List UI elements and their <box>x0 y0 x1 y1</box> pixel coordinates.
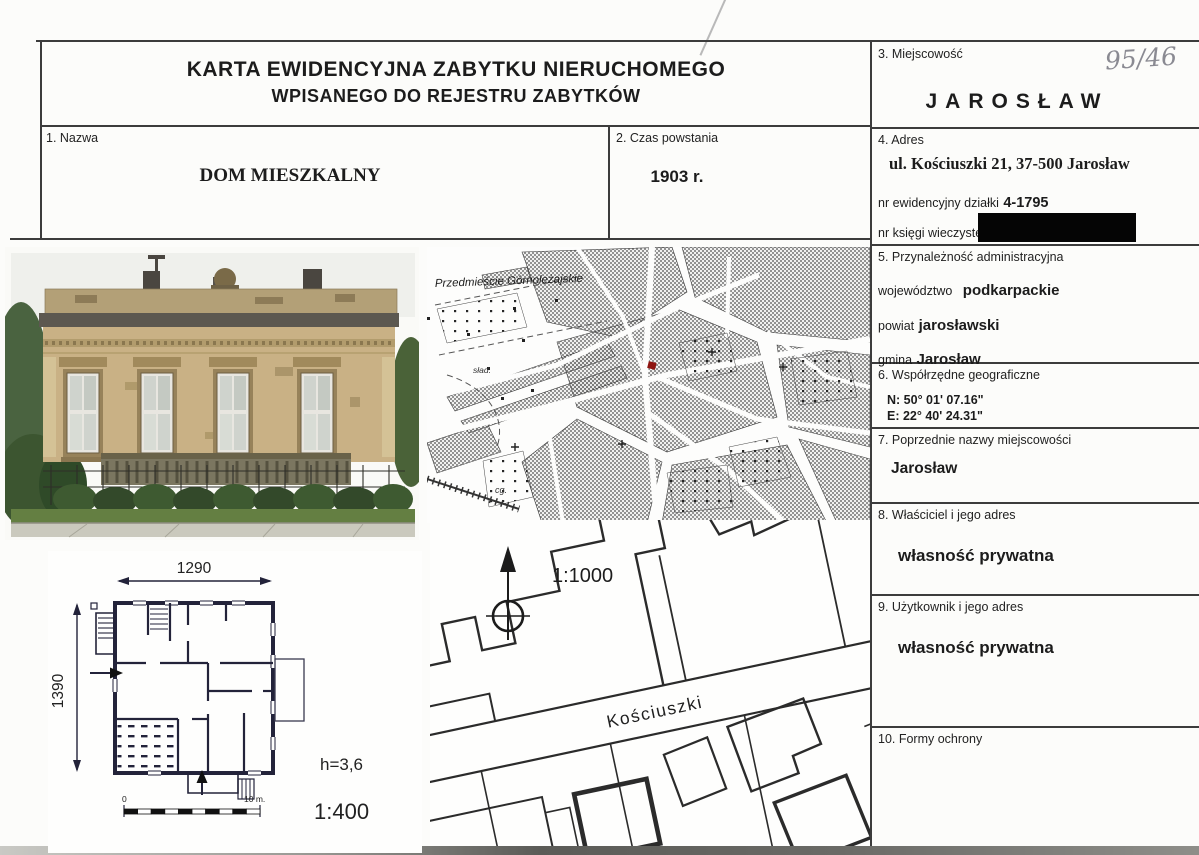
site-plan-drawing: Kościuszki 1:1000 <box>430 520 870 846</box>
handwritten-number: 95/46 <box>1104 42 1178 76</box>
rc-line-2 <box>872 244 1199 246</box>
field1-value: DOM MIESZKALNY <box>150 165 430 187</box>
rc-line-7 <box>872 726 1199 728</box>
county-row: powiat jarosławski <box>878 317 999 335</box>
floor-plan-drawing: 1290 1390 h=3,6 1:400 0 10 m. <box>48 551 422 853</box>
voivodeship-label: województwo <box>878 284 952 298</box>
field3-label: 3. Miejscowość <box>878 47 963 61</box>
field6-label: 6. Współrzędne geograficzne <box>878 368 1040 382</box>
field1-label: 1. Nazwa <box>46 131 98 145</box>
scan-scratch-line <box>699 0 726 56</box>
field4-parcel-row: nr ewidencyjny działki 4-1795 <box>878 194 1049 212</box>
floor-plan-scale-label: 1:400 <box>314 799 369 824</box>
field8-label: 8. Właściciel i jego adres <box>878 508 1016 522</box>
line-above-photo <box>10 238 872 240</box>
land-register-label: nr księgi wieczystej <box>878 226 985 240</box>
field2-value: 1903 r. <box>612 167 742 187</box>
historic-city-map: Przedmieście Górnoleżajskie sład. cg. <box>427 247 870 528</box>
rc-line-1 <box>872 127 1199 129</box>
heritage-record-card: 95/46 KARTA EWIDENCYJNA ZABYTKU NIERUCHO… <box>0 0 1199 855</box>
field3-value: JAROSŁAW <box>872 90 1162 114</box>
map-cg-label: cg. <box>495 485 507 495</box>
border-top <box>36 40 1199 42</box>
county-label: powiat <box>878 319 914 333</box>
coordinate-n: N: 50° 01' 07.16" <box>887 392 984 408</box>
field7-label: 7. Poprzednie nazwy miejscowości <box>878 433 1071 447</box>
building-photo <box>5 247 419 545</box>
floor-plan-height-note: h=3,6 <box>320 755 363 774</box>
county-value: jarosławski <box>919 317 1000 334</box>
commune-label: gmina <box>878 353 912 367</box>
rc-line-6 <box>872 594 1199 596</box>
line-under-title <box>40 125 872 127</box>
commune-row: gmina Jarosław <box>878 351 981 369</box>
floor-plan-width-dim: 1290 <box>177 560 212 577</box>
rc-line-4 <box>872 427 1199 429</box>
divider-field1-field2 <box>608 125 610 238</box>
field4-label: 4. Adres <box>878 133 924 147</box>
field9-label: 9. Użytkownik i jego adres <box>878 600 1023 614</box>
redaction-box <box>978 213 1136 242</box>
city-map-drawing: Przedmieście Górnoleżajskie sład. cg. <box>427 247 870 523</box>
rc-line-5 <box>872 502 1199 504</box>
floor-plan: 1290 1390 h=3,6 1:400 0 10 m. <box>48 551 422 855</box>
commune-value: Jarosław <box>917 351 981 368</box>
map-stad-label: sład. <box>473 365 491 375</box>
site-plan: Kościuszki 1:1000 <box>430 520 870 851</box>
field4-address: ul. Kościuszki 21, 37-500 Jarosław <box>889 154 1130 174</box>
field10-label: 10. Formy ochrony <box>878 732 982 746</box>
site-plan-scale-label: 1:1000 <box>552 565 613 587</box>
parcel-label: nr ewidencyjny działki <box>878 196 999 210</box>
building-photo-drawing <box>5 247 419 540</box>
photo-balustrade <box>101 453 351 485</box>
card-title-line1: KARTA EWIDENCYJNA ZABYTKU NIERUCHOMEGO <box>40 58 872 82</box>
floor-plan-dashed-room <box>118 722 176 771</box>
coordinate-e: E: 22° 40' 24.31" <box>887 408 983 424</box>
scalebar-start-label: 0 <box>122 794 127 804</box>
field8-value: własność prywatna <box>898 546 1054 566</box>
field2-label: 2. Czas powstania <box>616 131 718 145</box>
floor-plan-height-dim: 1390 <box>50 673 67 708</box>
parcel-value: 4-1795 <box>1003 195 1048 211</box>
voivodeship-value: podkarpackie <box>963 282 1060 299</box>
field9-value: własność prywatna <box>898 638 1054 658</box>
field5-label: 5. Przynależność administracyjna <box>878 250 1064 264</box>
scalebar-end-label: 10 m. <box>244 794 265 804</box>
voivodeship-row: województwo podkarpackie <box>878 282 1060 300</box>
field7-value: Jarosław <box>891 460 957 478</box>
card-title-line2: WPISANEGO DO REJESTRU ZABYTKÓW <box>40 86 872 107</box>
